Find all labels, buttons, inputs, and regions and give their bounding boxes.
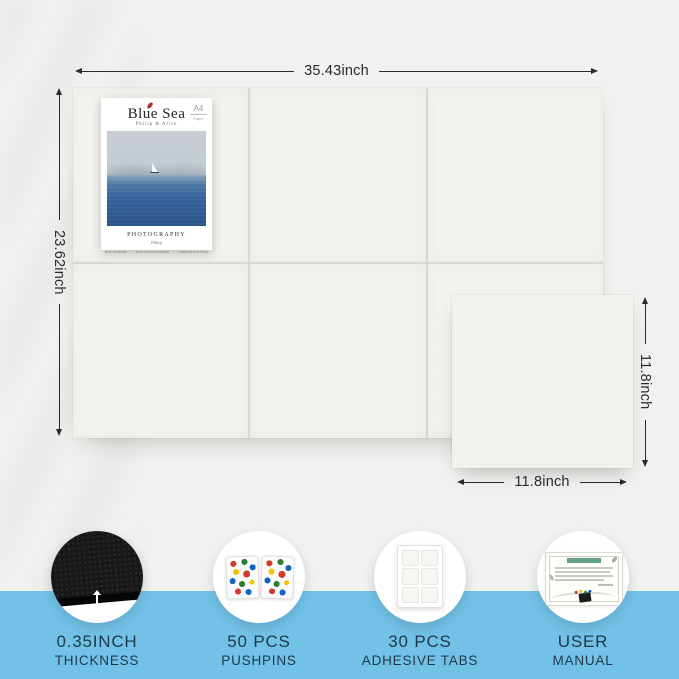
- feature-label: MANUAL: [498, 653, 668, 668]
- felt-tile: [428, 88, 603, 262]
- board-width-dimension: 35.43inch: [75, 63, 598, 79]
- dimension-line: [645, 420, 646, 460]
- feature-label: PUSHPINS: [174, 653, 344, 668]
- thickness-arrow-icon: [93, 590, 101, 611]
- adhesive-tab: [421, 568, 438, 584]
- adhesive-tab: [402, 587, 419, 603]
- felt-tile: [73, 264, 248, 438]
- poster-caption: PHOTOGRAPHY: [101, 232, 212, 238]
- feature-value: 50 PCS: [174, 632, 344, 652]
- single-felt-tile: [452, 295, 633, 468]
- pushpin-boxes-icon: [213, 531, 305, 623]
- felt-tile: [250, 88, 425, 262]
- arrowhead-down-icon: [642, 460, 648, 467]
- feature-pushpins: 50 PCS PUSHPINS: [174, 531, 344, 668]
- feature-value: 0.35INCH: [12, 632, 182, 652]
- arrow-stem: [96, 595, 98, 606]
- feature-value: USER: [498, 632, 668, 652]
- adhesive-tab: [402, 550, 419, 566]
- poster-author: Philip: [101, 240, 212, 245]
- tile-width-label: 11.8inch: [504, 474, 579, 490]
- manual-text-line: [555, 571, 610, 573]
- adhesive-tab: [421, 550, 438, 566]
- tile-width-dimension: 11.8inch: [457, 474, 627, 490]
- footnote-separator: |: [131, 249, 132, 254]
- poster-footnotes: Blue simplicity | Blue sea and sailboat …: [101, 249, 212, 254]
- dimension-line: [379, 71, 591, 72]
- adhesive-tab-sheet: [397, 545, 443, 608]
- arrowhead-down-icon: [56, 429, 62, 436]
- manual-signature-line: [598, 584, 613, 586]
- dimension-line: [580, 482, 620, 483]
- user-manual-icon: [537, 531, 629, 623]
- adhesive-tab: [421, 587, 438, 603]
- poster-subtitle: Philip & Alice: [101, 122, 212, 127]
- arrowhead-down-icon: [93, 606, 101, 611]
- tile-height-label: 11.8inch: [637, 344, 653, 419]
- feature-label: ADHESIVE TABS: [335, 653, 505, 668]
- poster-title-wrap: Blue Sea: [101, 105, 212, 121]
- feature-thickness: 0.35INCH THICKNESS: [12, 531, 182, 668]
- pushpin-dots: [574, 589, 592, 595]
- adhesive-tabs-icon: [374, 531, 466, 623]
- arrowhead-right-icon: [591, 68, 598, 74]
- manual-card: [545, 552, 623, 606]
- feature-value: 30 PCS: [335, 632, 505, 652]
- arrowhead-up-icon: [642, 297, 648, 304]
- sea-photo: [107, 131, 206, 226]
- adhesive-tab: [402, 568, 419, 584]
- arrowhead-left-icon: [75, 68, 82, 74]
- dimension-line: [645, 304, 646, 344]
- sea: [107, 175, 206, 226]
- manual-text-line: [555, 567, 613, 569]
- board-height-dimension: 23.62inch: [51, 88, 67, 436]
- feature-user-manual: USER MANUAL: [498, 531, 668, 668]
- tile-height-dimension: 11.8inch: [637, 297, 653, 467]
- pushpin-box: [225, 555, 259, 599]
- dimension-line: [59, 95, 60, 220]
- board-height-label: 23.62inch: [51, 220, 67, 305]
- footnote-separator: |: [173, 249, 174, 254]
- poster-footnote: Blue simplicity: [105, 250, 127, 254]
- sailboat-icon: [152, 163, 158, 172]
- manual-header-band: [567, 558, 601, 563]
- poster: A4 Paper Blue Sea Philip & Alice PHOTOGR…: [101, 98, 212, 250]
- product-infographic: 35.43inch 23.62inch A4 Paper Blue Sea Ph…: [0, 0, 679, 679]
- arrowhead-up-icon: [56, 88, 62, 95]
- poster-title: Blue Sea: [128, 106, 186, 122]
- board-width-label: 35.43inch: [294, 63, 379, 79]
- felt-thickness-icon: [51, 531, 143, 623]
- arrowhead-left-icon: [457, 479, 464, 485]
- feature-adhesive-tabs: 30 PCS ADHESIVE TABS: [335, 531, 505, 668]
- felt-tile: [250, 264, 425, 438]
- pushpin-box: [260, 555, 294, 599]
- dimension-line: [464, 482, 504, 483]
- poster-footnote: Blue sea and sailboat: [136, 250, 169, 254]
- manual-text-line: [555, 575, 613, 577]
- arrowhead-right-icon: [620, 479, 627, 485]
- manual-text-line: [555, 579, 604, 581]
- poster-footnote: Supported by Sony: [178, 250, 208, 254]
- dimension-line: [82, 71, 294, 72]
- feature-label: THICKNESS: [12, 653, 182, 668]
- dimension-line: [59, 304, 60, 429]
